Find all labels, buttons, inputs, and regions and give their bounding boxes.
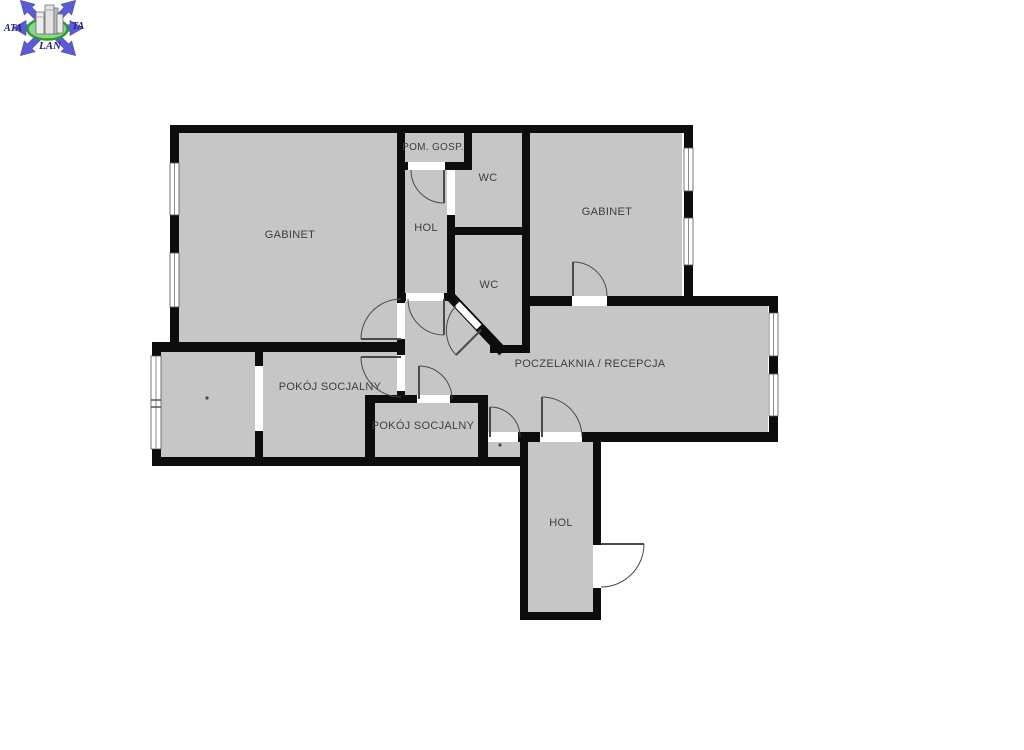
window	[769, 313, 778, 356]
wall	[593, 432, 601, 620]
floorplan-page: GABINET GABINET POM. GOSP. WC HOL WC POC…	[0, 0, 1024, 750]
wall	[464, 125, 472, 170]
floorplan-canvas: GABINET GABINET POM. GOSP. WC HOL WC POC…	[0, 0, 1024, 750]
door-arc	[601, 544, 644, 587]
wall	[520, 432, 528, 620]
window	[769, 374, 778, 416]
logo-text-right: TA	[72, 21, 85, 32]
door-opening	[397, 303, 405, 339]
passage-opening	[255, 366, 263, 431]
door-opening	[447, 170, 455, 215]
wall	[170, 125, 693, 133]
door-opening	[488, 432, 518, 442]
door-opening	[406, 293, 444, 301]
wall	[170, 125, 179, 350]
logo-text-bottom: LAN	[38, 40, 62, 52]
room-label-pokoj-socjalny-2: POKÓJ SOCJALNY	[372, 419, 475, 432]
door-opening	[540, 432, 582, 442]
entrance-door-opening	[593, 545, 601, 588]
window	[684, 218, 693, 265]
room-label-reception: POCZELAKNIA / RECEPCJA	[515, 358, 666, 370]
door-opening	[397, 355, 405, 391]
door-opening	[417, 395, 450, 403]
marker-dot	[205, 396, 208, 399]
wall	[152, 342, 405, 352]
wall	[152, 457, 528, 466]
agency-logo: ATA TA LAN	[3, 0, 85, 61]
door-opening	[408, 162, 445, 170]
door-opening	[572, 296, 607, 306]
marker-dot	[498, 443, 501, 446]
wall	[522, 296, 778, 306]
room-label-pokoj-socjalny-1: POKÓJ SOCJALNY	[279, 380, 382, 393]
room-label-hol-bottom: HOL	[549, 517, 573, 529]
wall	[520, 612, 601, 620]
window	[684, 148, 693, 191]
room-label-hol-top: HOL	[414, 222, 438, 234]
room-label-gabinet-left: GABINET	[265, 229, 315, 241]
logo-text-left: ATA	[3, 23, 23, 34]
room-label-wc-upper: WC	[479, 172, 498, 184]
room-label-pom-gosp: POM. GOSP.	[402, 142, 464, 153]
window	[170, 253, 179, 307]
wall	[522, 125, 530, 353]
wall	[447, 227, 530, 235]
logo-buildings-icon	[36, 5, 63, 34]
room-label-gabinet-right: GABINET	[582, 206, 632, 218]
wall	[478, 395, 488, 466]
room-fills	[161, 133, 768, 612]
window	[151, 356, 161, 449]
room-fill-left-rooms	[161, 352, 397, 457]
room-label-wc-lower: WC	[480, 279, 499, 291]
room-fill-vestibule	[488, 442, 520, 457]
window	[170, 163, 179, 215]
